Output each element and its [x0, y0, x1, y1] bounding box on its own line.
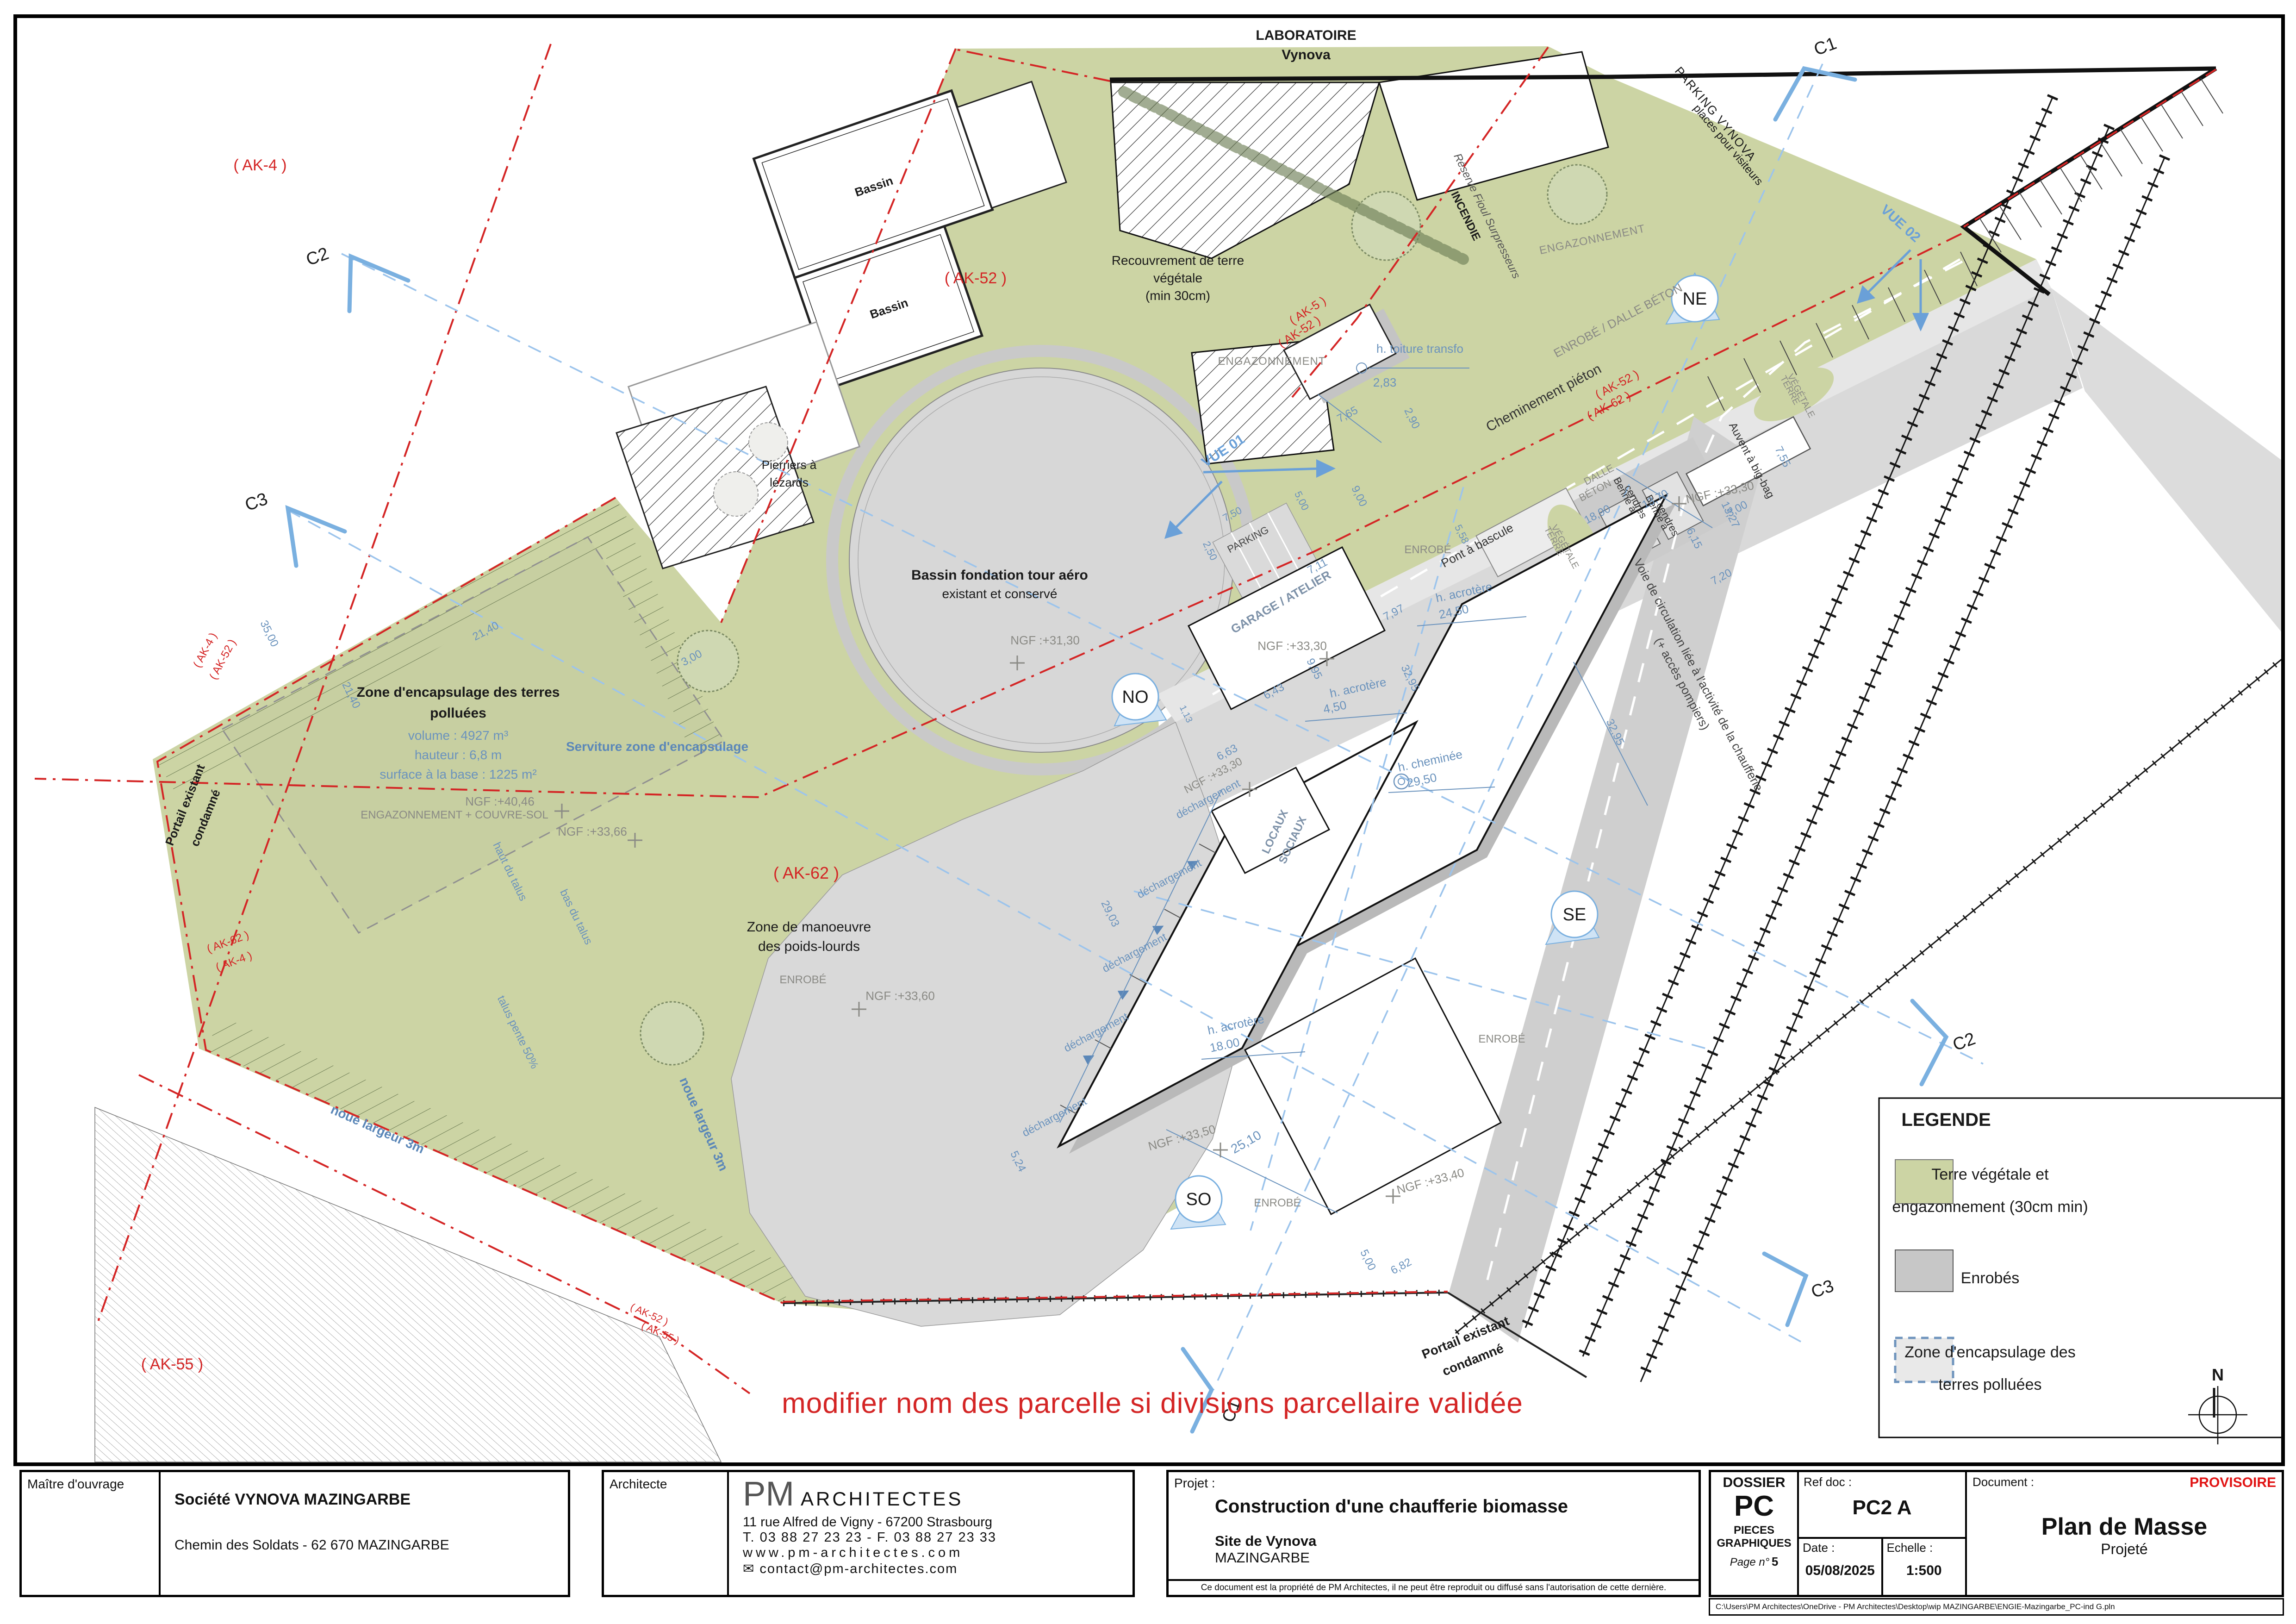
architect-phone: T. 03 88 27 23 23 - F. 03 88 27 23 33 [743, 1530, 1126, 1545]
svg-text:NE: NE [1683, 289, 1707, 309]
svg-text:SE: SE [1563, 905, 1587, 924]
svg-text:Enrobés: Enrobés [1961, 1269, 2020, 1287]
svg-text:existant et conservé: existant et conservé [942, 587, 1057, 601]
dossier-code: PC [1711, 1491, 1797, 1522]
ngf-3330-garage: NGF :+33,30 [1257, 639, 1327, 653]
architect-brand-name: ARCHITECTES [801, 1488, 963, 1510]
dossier-sub2: GRAPHIQUES [1711, 1537, 1797, 1550]
titleblock-project: Projet : Construction d'une chaufferie b… [1166, 1470, 1701, 1597]
svg-text:Zone d'encapsulage des: Zone d'encapsulage des [1904, 1343, 2075, 1361]
svg-text:Terre végétale et: Terre végétale et [1931, 1166, 2049, 1183]
svg-text:( AK-55 ): ( AK-55 ) [141, 1355, 203, 1373]
ngf-3130: NGF :+31,30 [1010, 633, 1080, 647]
scale-value: 1:500 [1883, 1563, 1966, 1579]
titleblock-architect: Architecte PM ARCHITECTES 11 rue Alfred … [602, 1470, 1135, 1597]
svg-text:surface à la base : 1225 m²: surface à la base : 1225 m² [380, 767, 536, 781]
svg-text:( AK-52 ): ( AK-52 ) [945, 269, 1007, 287]
encapsulation-title: Zone d'encapsulage des terres [357, 685, 560, 700]
file-path: C:\Users\PM Architectes\OneDrive - PM Ar… [1716, 1602, 2115, 1612]
project-city: MAZINGARBE [1215, 1549, 1568, 1566]
project-copyright: Ce document est la propriété de PM Archi… [1169, 1579, 1699, 1595]
enrobe-2: ENROBÉ [1254, 1197, 1300, 1209]
svg-text:polluées: polluées [430, 706, 486, 721]
mail-icon: ✉ [743, 1562, 755, 1576]
legend-title: LEGENDE [1901, 1110, 1991, 1130]
owner-address: Chemin des Soldats - 62 670 MAZINGARBE [174, 1537, 559, 1553]
architect-email: contact@pm-architectes.com [759, 1562, 958, 1576]
svg-text:SO: SO [1186, 1190, 1212, 1209]
engaz-couvre-sol: ENGAZONNEMENT + COUVRE-SOL [361, 809, 548, 821]
zone-manoeuvre-label: Zone de manoeuvre [747, 919, 871, 935]
ngf-4046: NGF :+40,46 [465, 794, 535, 808]
document-status: PROVISOIRE [2190, 1475, 2276, 1491]
page-number: 5 [1772, 1555, 1778, 1568]
recouvrement-label: Recouvrement de terre [1112, 253, 1244, 268]
architect-label: Architecte [604, 1472, 729, 1595]
project-label: Projet : [1174, 1476, 1215, 1491]
bassin-fondation-label: Bassin fondation tour aéro [911, 568, 1088, 583]
ngf-3360: NGF :+33,60 [865, 989, 935, 1003]
architect-brand-initials: PM [743, 1477, 794, 1511]
enrobe-1: ENROBÉ [779, 974, 826, 986]
revision-note: modifier nom des parcelle si divisions p… [782, 1387, 1523, 1419]
project-site: Site de Vynova [1215, 1533, 1568, 1549]
document-subtitle: Projeté [1967, 1541, 2282, 1558]
serviture-label: Serviture zone d'encapsulage [566, 739, 748, 754]
svg-text:volume : 4927 m³: volume : 4927 m³ [408, 728, 508, 743]
owner-name: Société VYNOVA MAZINGARBE [174, 1491, 559, 1509]
svg-text:( AK-62 ): ( AK-62 ) [773, 863, 839, 882]
ngf-3366: NGF :+33,66 [558, 824, 627, 838]
date-label: Date : [1803, 1541, 1835, 1555]
svg-text:Vynova: Vynova [1282, 47, 1331, 62]
toiture-transfo: h. toiture transfo [1376, 342, 1463, 356]
svg-text:(min 30cm): (min 30cm) [1145, 288, 1210, 303]
svg-text:NO: NO [1122, 687, 1149, 707]
svg-text:végétale: végétale [1153, 271, 1202, 285]
svg-text:2,83: 2,83 [1373, 375, 1397, 389]
svg-text:( AK-4 ): ( AK-4 ) [233, 156, 286, 174]
document-title: Plan de Masse [1967, 1513, 2282, 1541]
titleblock-dossier: DOSSIER PC PIECES GRAPHIQUES Page n° 5 R… [1709, 1470, 2284, 1597]
svg-text:des poids-lourds: des poids-lourds [758, 939, 860, 954]
pierriers-label: Pierriers à [762, 458, 817, 472]
svg-text:N: N [2212, 1365, 2224, 1384]
architect-website: www.pm-architectes.com [743, 1545, 1126, 1561]
svg-text:terres polluées: terres polluées [1938, 1376, 2041, 1393]
file-path-strip: C:\Users\PM Architectes\OneDrive - PM Ar… [1709, 1598, 2284, 1616]
refdoc-label: Ref doc : [1804, 1475, 1852, 1489]
svg-text:lézards: lézards [770, 475, 809, 489]
svg-text:engazonnement (30cm min): engazonnement (30cm min) [1892, 1198, 2088, 1216]
legend-swatch-gray [1895, 1250, 1953, 1292]
dossier-sub1: PIECES [1711, 1524, 1797, 1537]
legend: LEGENDE Terre végétale et engazonnement … [1879, 1098, 2283, 1437]
svg-text:hauteur : 6,8 m: hauteur : 6,8 m [415, 748, 502, 762]
project-title: Construction d'une chaufferie biomasse [1215, 1496, 1568, 1517]
titleblock-owner: Maître d'ouvrage Société VYNOVA MAZINGAR… [19, 1470, 570, 1597]
scale-label: Echelle : [1887, 1541, 1933, 1555]
enrobe-3: ENROBÉ [1404, 543, 1451, 556]
engazonnement-label-1: ENGAZONNEMENT [1218, 355, 1325, 368]
page-label: Page n° [1730, 1556, 1770, 1568]
dossier-label: DOSSIER [1711, 1475, 1797, 1491]
enrobe-4: ENROBÉ [1478, 1033, 1525, 1045]
document-label: Document : [1972, 1475, 2034, 1489]
laboratoire-label: LABORATOIRE [1256, 28, 1356, 43]
drawing-sheet: Bassin Bassin [0, 0, 2296, 1624]
date-value: 05/08/2025 [1799, 1563, 1881, 1579]
architect-address: 11 rue Alfred de Vigny - 67200 Strasbour… [743, 1515, 1126, 1530]
refdoc-value: PC2 A [1799, 1496, 1965, 1519]
site-plan-svg: Bassin Bassin [0, 0, 2296, 1624]
owner-label: Maître d'ouvrage [22, 1472, 161, 1595]
